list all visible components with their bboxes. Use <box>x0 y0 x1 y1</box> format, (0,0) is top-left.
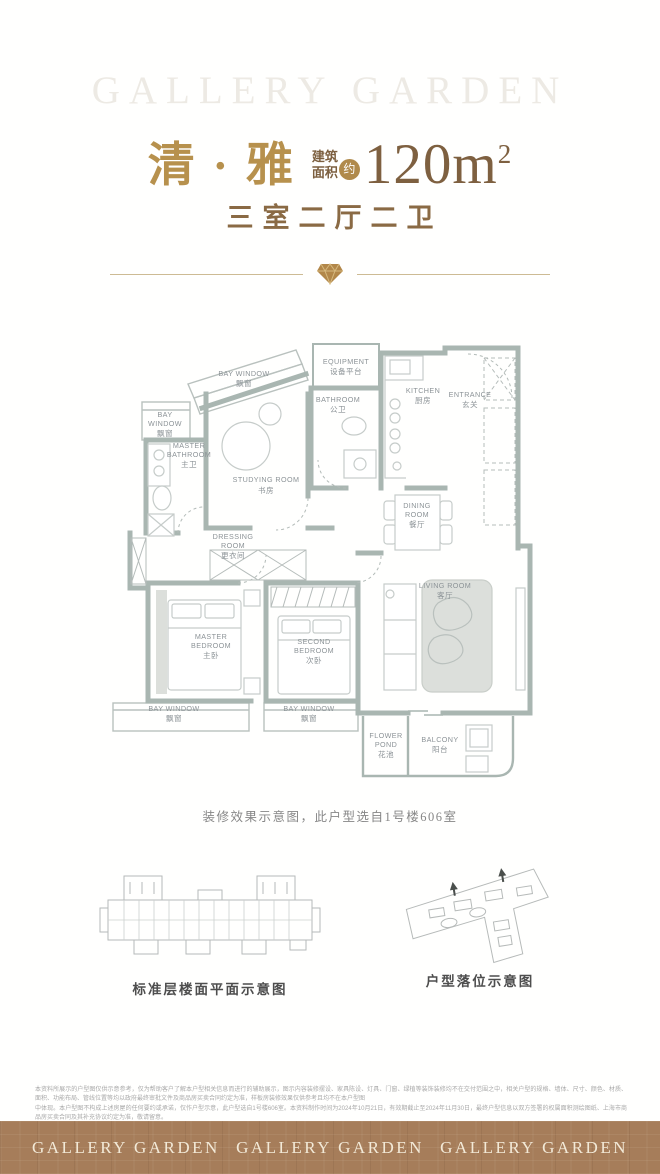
svg-text:ENTRANCE: ENTRANCE <box>449 390 492 399</box>
svg-text:BAY WINDOW: BAY WINDOW <box>148 704 199 713</box>
svg-text:SECOND: SECOND <box>297 637 330 646</box>
plan-caption: 装修效果示意图，此户型选自1号楼606室 <box>0 806 660 825</box>
floor-plate-diagram <box>94 866 326 972</box>
svg-text:WINDOW: WINDOW <box>148 419 182 428</box>
footer-brand-left: GALLERY GARDEN <box>32 1138 220 1158</box>
svg-text:厨房: 厨房 <box>415 395 431 405</box>
svg-text:飘窗: 飘窗 <box>301 713 317 723</box>
footer-band: GALLERY GARDEN GALLERY GARDEN GALLERY GA… <box>0 1121 660 1174</box>
svg-text:STUDYING ROOM: STUDYING ROOM <box>233 475 300 484</box>
diamond-icon <box>317 263 343 285</box>
svg-text:书房: 书房 <box>258 485 274 495</box>
poster-page: GALLERY GARDEN 清 · 雅 建筑 面积 约 120m2 三室二厅二… <box>0 0 660 1174</box>
svg-text:EQUIPMENT: EQUIPMENT <box>323 357 370 366</box>
svg-text:MASTER: MASTER <box>195 632 227 641</box>
svg-text:BAY WINDOW: BAY WINDOW <box>283 704 334 713</box>
shaft-hatch <box>131 538 146 584</box>
site-location-diagram <box>392 858 568 970</box>
disclaimer-line-1: 本资料所展示的户型图仅供示意参考，仅为帮助客户了解本户型相关信息而进行的辅助展示… <box>35 1086 627 1105</box>
svg-text:花池: 花池 <box>378 749 394 759</box>
svg-text:设备平台: 设备平台 <box>330 366 362 376</box>
divider <box>110 262 550 286</box>
site-location-caption: 户型落位示意图 <box>392 970 568 990</box>
unit-location-markers <box>448 868 508 897</box>
svg-text:BATHROOM: BATHROOM <box>167 450 211 459</box>
svg-text:主卫: 主卫 <box>181 459 197 469</box>
svg-text:ROOM: ROOM <box>221 541 245 550</box>
svg-text:客厅: 客厅 <box>437 590 453 600</box>
svg-text:ROOM: ROOM <box>405 510 429 519</box>
svg-text:KITCHEN: KITCHEN <box>406 386 440 395</box>
svg-text:阳台: 阳台 <box>432 744 448 754</box>
equipment-platform <box>313 344 379 388</box>
brand-watermark: GALLERY GARDEN <box>0 68 660 113</box>
svg-text:主卧: 主卧 <box>203 650 219 660</box>
svg-text:DRESSING: DRESSING <box>213 532 254 541</box>
second-bedroom-wardrobe <box>271 587 355 607</box>
svg-text:FLOWER: FLOWER <box>369 731 402 740</box>
svg-text:餐厅: 餐厅 <box>409 520 425 529</box>
unit-title: 清 · 雅 <box>148 126 296 195</box>
floorplan: BAY WINDOW 飘窗 BAY WINDOW 飘窗 MASTER BATHR… <box>98 298 558 792</box>
area-label: 建筑 面积 <box>312 149 338 180</box>
area-value: 120m2 <box>364 136 512 193</box>
header: 清 · 雅 建筑 面积 约 120m2 <box>0 126 660 195</box>
divider-line-left <box>110 274 303 275</box>
svg-text:POND: POND <box>375 740 397 749</box>
svg-text:公卫: 公卫 <box>330 405 346 414</box>
svg-text:MASTER: MASTER <box>173 441 205 450</box>
entrance-closets <box>484 358 515 525</box>
svg-text:BALCONY: BALCONY <box>421 735 458 744</box>
approx-badge: 约 <box>339 159 360 180</box>
svg-text:飘窗: 飘窗 <box>236 378 252 388</box>
layout-type: 三室二厅二卫 <box>0 196 660 235</box>
svg-text:BEDROOM: BEDROOM <box>294 646 334 655</box>
sliding-door <box>408 711 443 715</box>
svg-text:BAY WINDOW: BAY WINDOW <box>218 369 269 378</box>
footer-brand-center: GALLERY GARDEN <box>236 1138 424 1158</box>
disclaimer: 本资料所展示的户型图仅供示意参考，仅为帮助客户了解本户型相关信息而进行的辅助展示… <box>35 1086 627 1123</box>
footer-brand-right: GALLERY GARDEN <box>440 1138 628 1158</box>
svg-text:飘窗: 飘窗 <box>166 713 182 723</box>
svg-text:玄关: 玄关 <box>462 399 478 409</box>
svg-text:BAY: BAY <box>157 410 172 419</box>
divider-line-right <box>357 274 550 275</box>
svg-text:飘窗: 飘窗 <box>157 428 173 438</box>
svg-text:DINING: DINING <box>403 501 431 510</box>
svg-text:次卧: 次卧 <box>306 655 322 665</box>
svg-text:更衣间: 更衣间 <box>221 550 245 560</box>
svg-text:LIVING ROOM: LIVING ROOM <box>419 581 471 590</box>
svg-text:BEDROOM: BEDROOM <box>191 641 231 650</box>
svg-text:BATHROOM: BATHROOM <box>316 395 360 404</box>
area-group: 建筑 面积 约 120m2 <box>312 136 512 193</box>
floor-plate-caption: 标准层楼面平面示意图 <box>94 978 326 998</box>
